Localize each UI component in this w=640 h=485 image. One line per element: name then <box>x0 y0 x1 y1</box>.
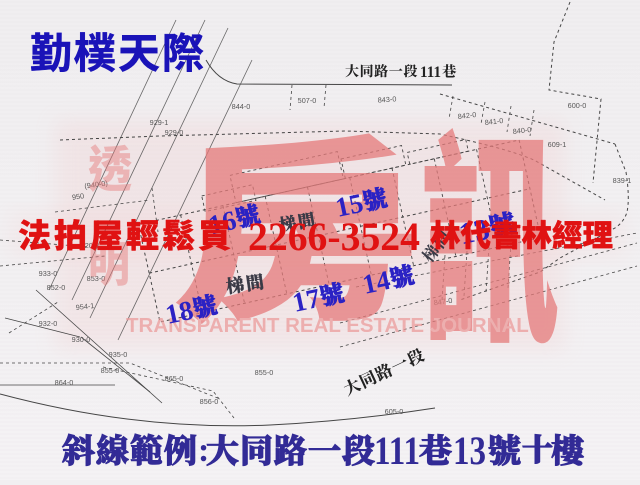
svg-text:111: 111 <box>420 64 441 81</box>
svg-text:844-0: 844-0 <box>232 102 251 111</box>
svg-text:843-0: 843-0 <box>377 94 396 104</box>
svg-text:935-0: 935-0 <box>109 350 128 359</box>
svg-text:930-0: 930-0 <box>72 335 91 344</box>
svg-text:929-1: 929-1 <box>150 118 169 127</box>
svg-text:929-0: 929-0 <box>165 128 184 137</box>
svg-text:507-0: 507-0 <box>298 96 317 105</box>
svg-text:609-1: 609-1 <box>548 140 567 149</box>
svg-text:605-0: 605-0 <box>385 407 404 416</box>
svg-text:933-0: 933-0 <box>39 269 58 278</box>
svg-text:855-0: 855-0 <box>255 368 274 377</box>
svg-text:111: 111 <box>374 428 420 473</box>
svg-text:13: 13 <box>453 428 486 473</box>
svg-text:856-0: 856-0 <box>200 397 219 406</box>
svg-text:2266-3524: 2266-3524 <box>248 214 420 259</box>
svg-text:865-0: 865-0 <box>165 374 184 383</box>
svg-text:852-0: 852-0 <box>47 283 66 292</box>
svg-text:950: 950 <box>71 191 84 202</box>
svg-text:932-0: 932-0 <box>39 319 58 328</box>
svg-text:855-0: 855-0 <box>101 366 120 375</box>
svg-text:600-0: 600-0 <box>568 101 587 110</box>
svg-text::: : <box>198 432 209 469</box>
svg-text:839-1: 839-1 <box>613 176 632 185</box>
svg-text:864-0: 864-0 <box>55 378 74 387</box>
